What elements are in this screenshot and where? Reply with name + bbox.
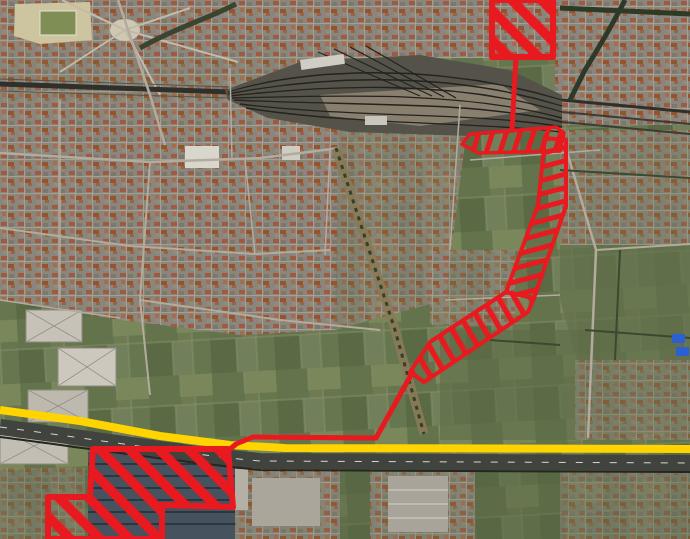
north-site-zone[interactable] [492,0,553,57]
map-viewport[interactable] [0,0,690,539]
map-canvas[interactable] [0,0,690,539]
sports-pitch [40,11,76,35]
